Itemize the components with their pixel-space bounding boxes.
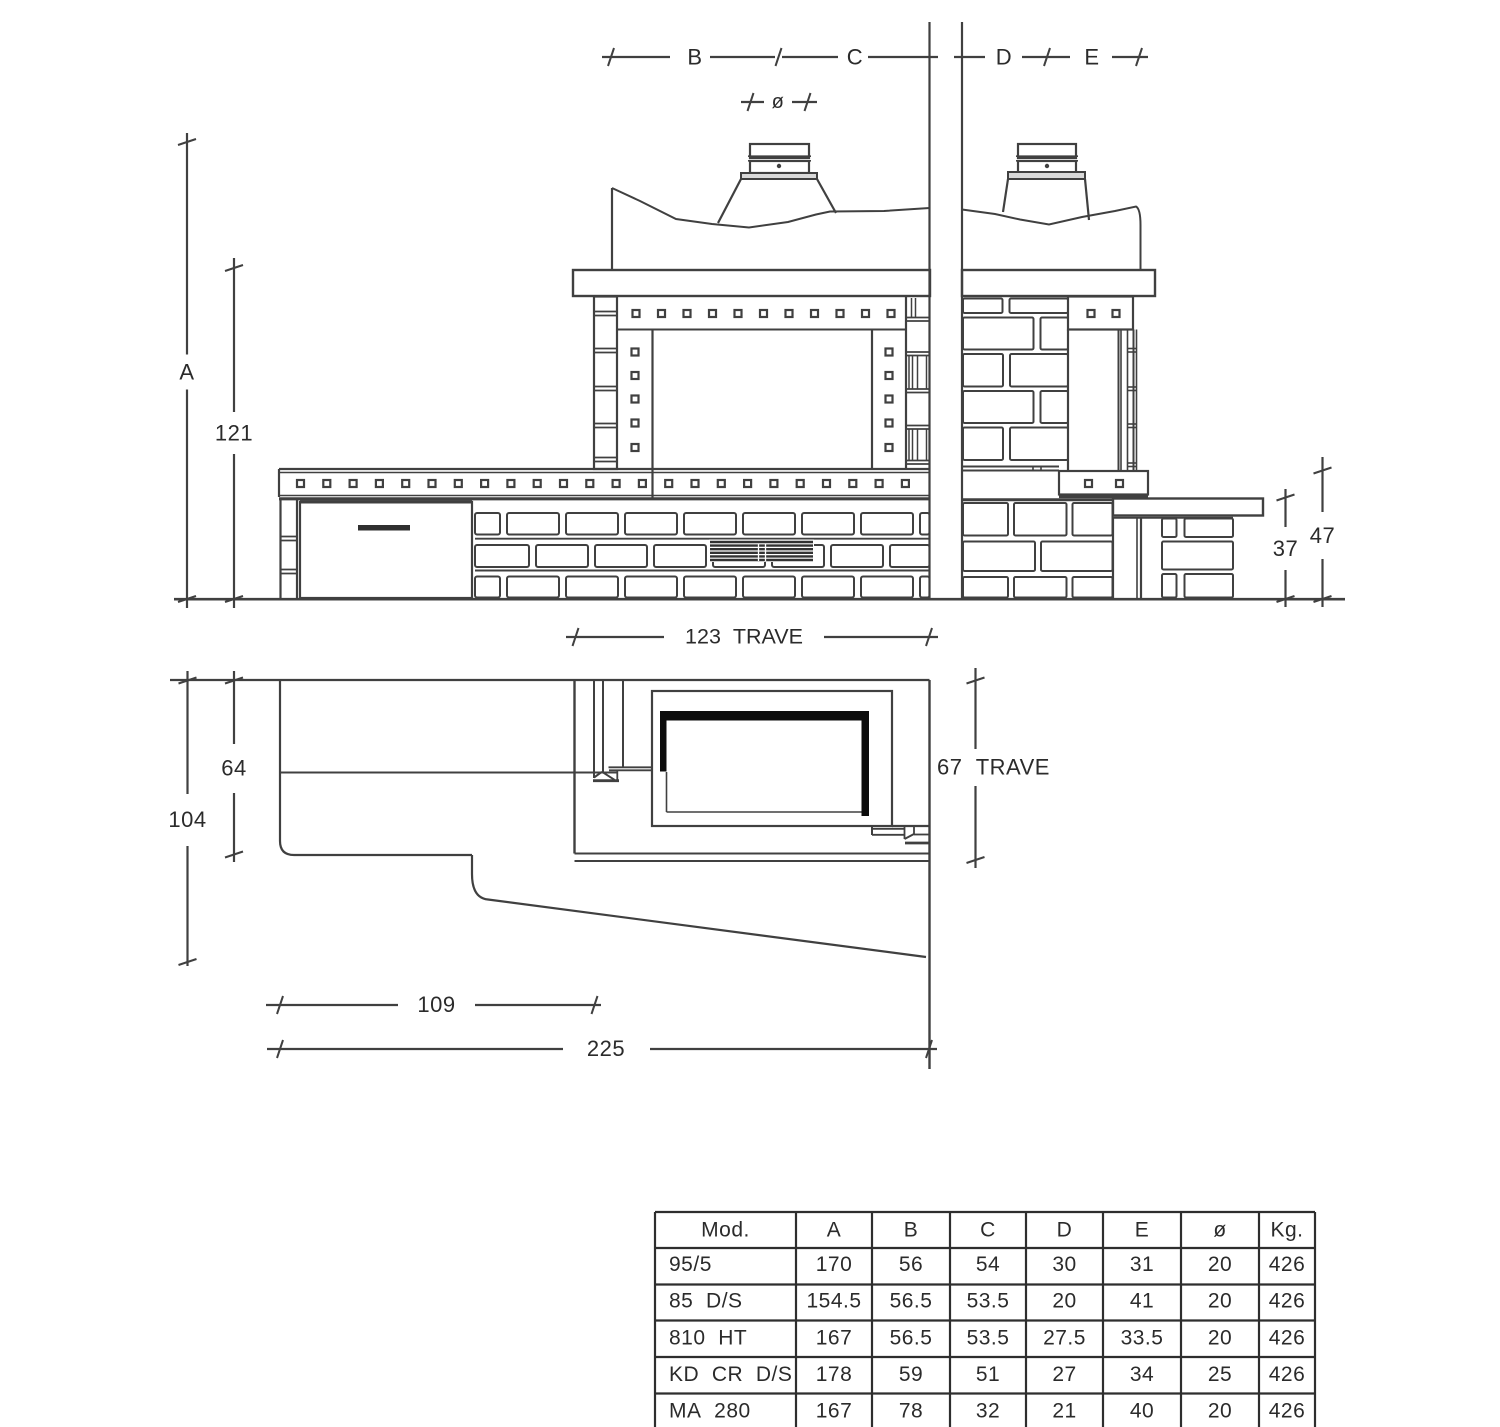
svg-text:67 TRAVE: 67 TRAVE xyxy=(937,755,1050,780)
svg-text:426: 426 xyxy=(1269,1363,1306,1386)
svg-text:20: 20 xyxy=(1208,1290,1232,1313)
svg-text:40: 40 xyxy=(1130,1400,1154,1423)
svg-text:33.5: 33.5 xyxy=(1121,1327,1164,1350)
svg-text:109: 109 xyxy=(417,992,455,1017)
svg-text:85 D/S: 85 D/S xyxy=(669,1290,743,1313)
svg-text:21: 21 xyxy=(1052,1400,1076,1423)
svg-text:95/5: 95/5 xyxy=(669,1253,712,1276)
svg-text:41: 41 xyxy=(1130,1290,1154,1313)
svg-text:167: 167 xyxy=(816,1327,853,1350)
svg-text:25: 25 xyxy=(1208,1363,1232,1386)
svg-text:C: C xyxy=(980,1219,996,1242)
svg-text:56.5: 56.5 xyxy=(890,1327,933,1350)
svg-text:31: 31 xyxy=(1130,1253,1154,1276)
svg-text:51: 51 xyxy=(976,1363,1000,1386)
svg-text:20: 20 xyxy=(1208,1400,1232,1423)
svg-text:121: 121 xyxy=(215,421,253,446)
svg-text:167: 167 xyxy=(816,1400,853,1423)
svg-text:D: D xyxy=(1057,1219,1073,1242)
svg-text:47: 47 xyxy=(1310,523,1335,548)
svg-text:ø: ø xyxy=(1213,1219,1226,1242)
svg-text:20: 20 xyxy=(1208,1253,1232,1276)
svg-text:78: 78 xyxy=(899,1400,923,1423)
svg-text:34: 34 xyxy=(1130,1363,1154,1386)
svg-text:426: 426 xyxy=(1269,1290,1306,1313)
svg-text:20: 20 xyxy=(1208,1327,1232,1350)
svg-text:E: E xyxy=(1135,1219,1150,1242)
svg-text:KD CR D/S: KD CR D/S xyxy=(669,1363,792,1386)
svg-text:32: 32 xyxy=(976,1400,1000,1423)
svg-text:56: 56 xyxy=(899,1253,923,1276)
svg-text:20: 20 xyxy=(1052,1290,1076,1313)
svg-text:A: A xyxy=(179,360,194,385)
svg-text:426: 426 xyxy=(1269,1400,1306,1423)
svg-text:MA 280: MA 280 xyxy=(669,1400,751,1423)
svg-text:53.5: 53.5 xyxy=(967,1327,1010,1350)
svg-text:C: C xyxy=(847,45,863,70)
svg-text:104: 104 xyxy=(168,807,206,832)
svg-text:178: 178 xyxy=(816,1363,853,1386)
svg-text:Kg.: Kg. xyxy=(1270,1219,1303,1242)
svg-text:64: 64 xyxy=(221,756,246,781)
svg-text:ø: ø xyxy=(772,91,785,113)
svg-text:A: A xyxy=(827,1219,842,1242)
svg-text:170: 170 xyxy=(816,1253,853,1276)
svg-text:123 TRAVE: 123 TRAVE xyxy=(685,625,803,649)
svg-text:54: 54 xyxy=(976,1253,1000,1276)
svg-text:225: 225 xyxy=(587,1036,625,1061)
svg-text:27.5: 27.5 xyxy=(1043,1327,1086,1350)
svg-text:53.5: 53.5 xyxy=(967,1290,1010,1313)
svg-text:27: 27 xyxy=(1052,1363,1076,1386)
svg-text:37: 37 xyxy=(1273,536,1298,561)
svg-text:B: B xyxy=(904,1219,919,1242)
svg-text:59: 59 xyxy=(899,1363,923,1386)
svg-text:426: 426 xyxy=(1269,1327,1306,1350)
svg-text:426: 426 xyxy=(1269,1253,1306,1276)
svg-text:B: B xyxy=(687,45,702,70)
svg-text:E: E xyxy=(1084,45,1099,70)
svg-text:30: 30 xyxy=(1052,1253,1076,1276)
svg-text:Mod.: Mod. xyxy=(701,1219,750,1242)
svg-text:154.5: 154.5 xyxy=(806,1290,861,1313)
svg-text:810 HT: 810 HT xyxy=(669,1327,747,1350)
svg-text:56.5: 56.5 xyxy=(890,1290,933,1313)
svg-text:D: D xyxy=(996,45,1012,70)
